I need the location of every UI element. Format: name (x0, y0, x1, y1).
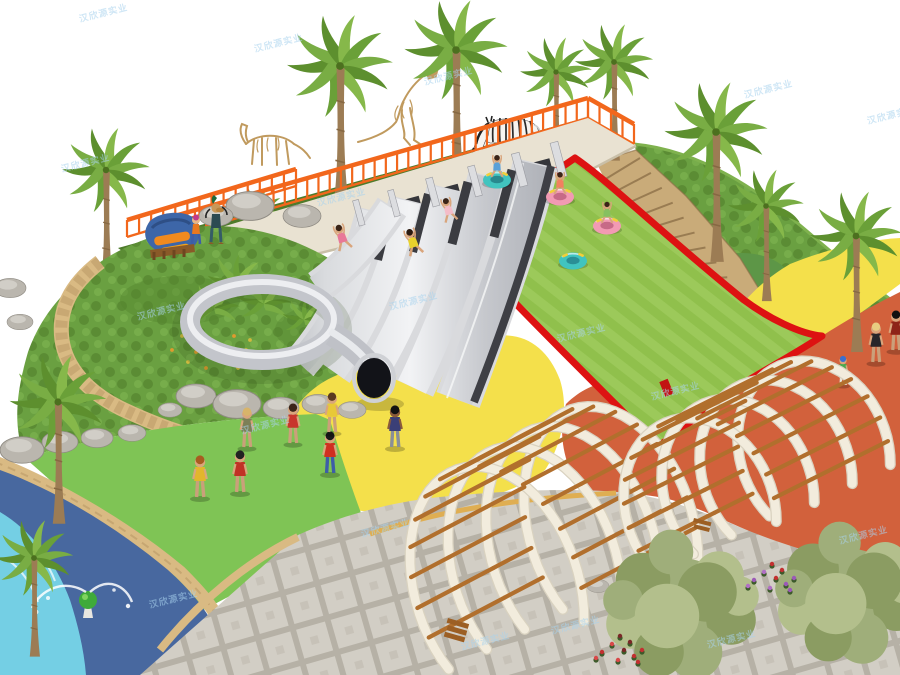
tree-canopy (635, 584, 699, 648)
flower (784, 582, 788, 586)
flower (770, 562, 774, 566)
render-canvas: 汉欣源实业汉欣源实业汉欣源实业汉欣源实业汉欣源实业汉欣源实业汉欣源实业汉欣源实业… (0, 0, 900, 675)
tree-canopy (649, 530, 694, 575)
flower-dot (232, 334, 236, 338)
flower (774, 576, 778, 580)
flower (746, 584, 750, 588)
tree-canopy (805, 573, 866, 634)
flower-dot (248, 338, 252, 342)
flower (762, 570, 766, 574)
flower (636, 660, 640, 664)
flower (616, 658, 620, 662)
flower (628, 640, 632, 644)
flower (632, 654, 636, 658)
flower (788, 588, 792, 592)
playground-3d-render: 汉欣源实业汉欣源实业汉欣源实业汉欣源实业汉欣源实业汉欣源实业汉欣源实业汉欣源实业… (0, 0, 900, 675)
flower (594, 656, 598, 660)
flower (640, 648, 644, 652)
flower (752, 578, 756, 582)
flower-dot (170, 348, 174, 352)
flower (610, 642, 614, 646)
flower (600, 650, 604, 654)
flower (768, 586, 772, 590)
flower (622, 648, 626, 652)
flower (780, 568, 784, 572)
flower (792, 576, 796, 580)
flower (618, 634, 622, 638)
